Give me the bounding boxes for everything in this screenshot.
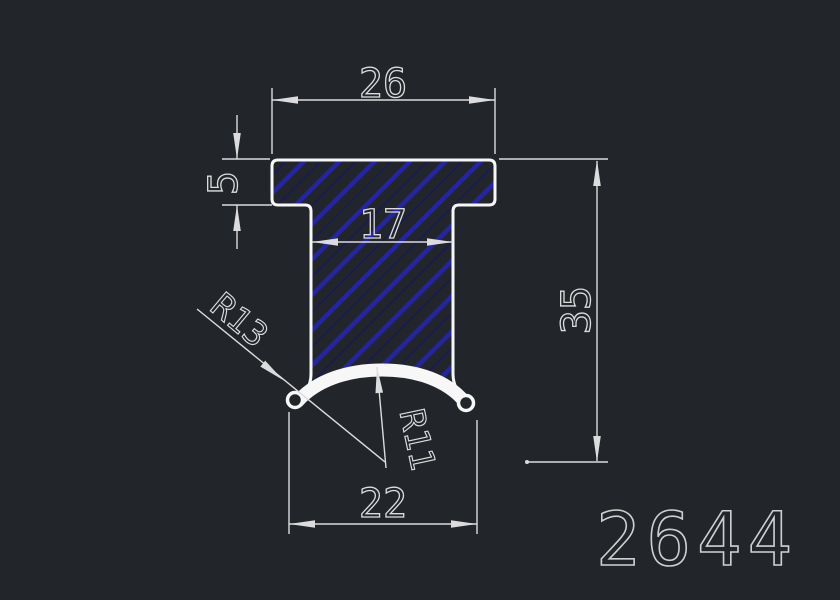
cad-drawing-canvas[interactable]: 26 5 17 35 22 R13	[0, 0, 840, 600]
dimension-flange-thickness-label: 5	[201, 171, 247, 195]
left-lip	[288, 393, 303, 408]
dimension-total-height-label: 35	[554, 286, 600, 334]
dimension-top-width-label: 26	[359, 61, 407, 107]
extension-line-origin-dot	[525, 460, 529, 464]
dimension-stem-width-label: 17	[359, 202, 407, 248]
right-lip	[459, 396, 474, 411]
dimension-bottom-width-label: 22	[359, 481, 407, 527]
cad-viewport[interactable]: 26 5 17 35 22 R13	[0, 0, 840, 600]
part-number-label: 2644	[596, 497, 798, 583]
